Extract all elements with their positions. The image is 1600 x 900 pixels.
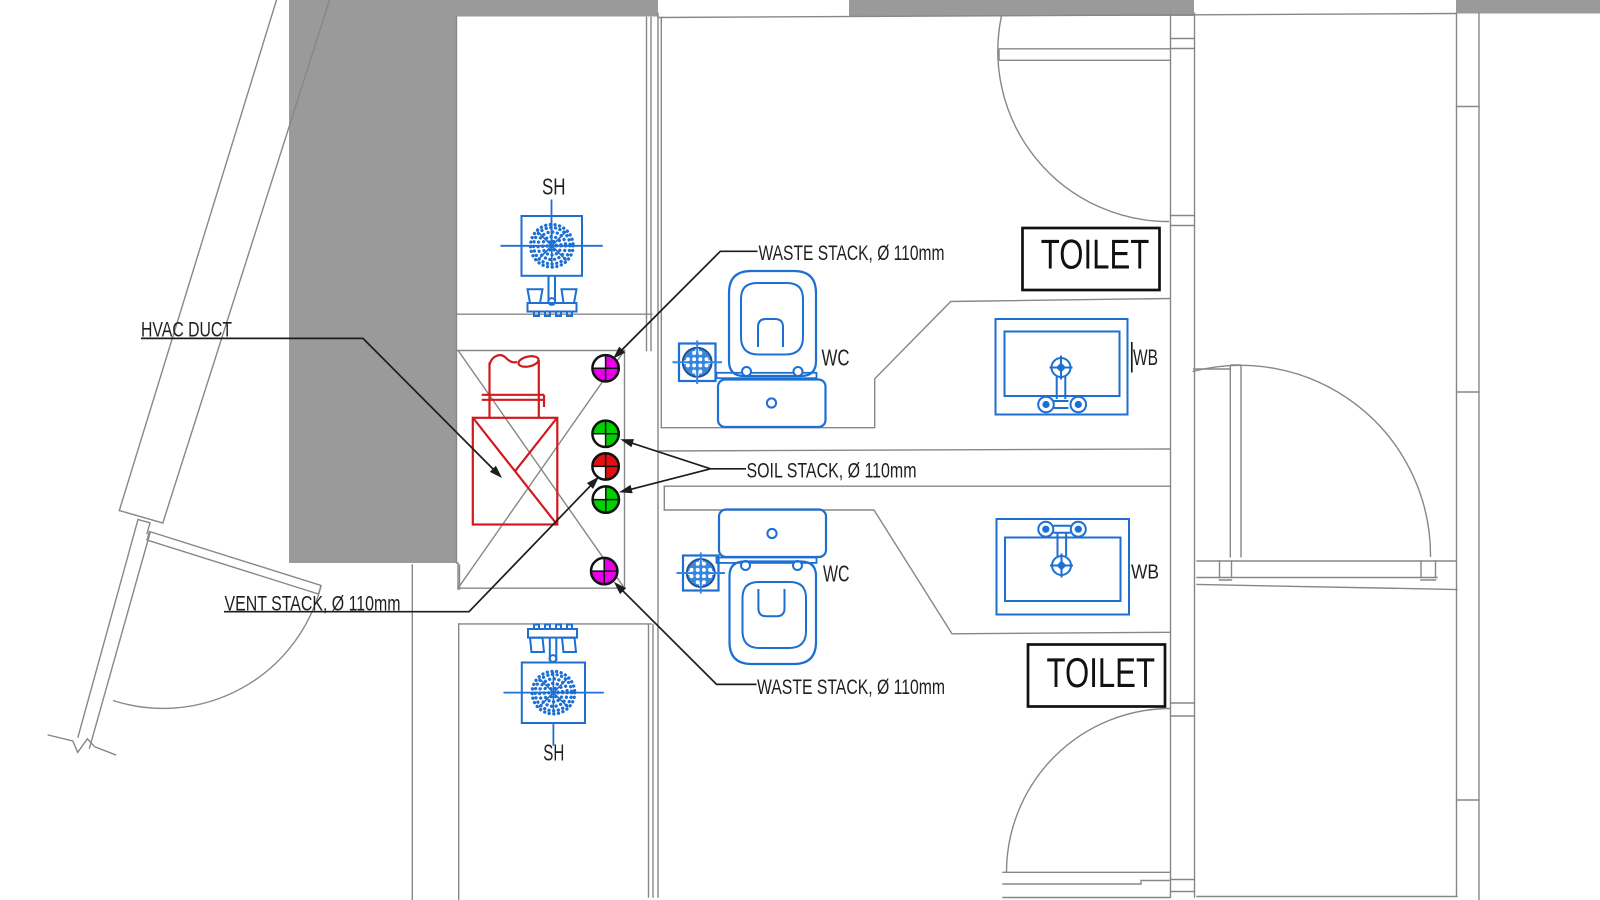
svg-text:WASTE STACK, Ø 110mm: WASTE STACK, Ø 110mm [759, 241, 945, 265]
svg-text:TOILET: TOILET [1047, 649, 1156, 696]
svg-text:WB: WB [1133, 345, 1158, 370]
svg-text:WB: WB [1131, 561, 1159, 583]
svg-text:WC: WC [822, 345, 850, 371]
svg-text:TOILET: TOILET [1041, 231, 1150, 278]
svg-text:SH: SH [542, 174, 566, 200]
svg-text:HVAC DUCT: HVAC DUCT [141, 319, 232, 342]
svg-text:SOIL STACK, Ø 110mm: SOIL STACK, Ø 110mm [747, 458, 917, 482]
svg-text:SH: SH [543, 740, 564, 766]
svg-text:WASTE STACK, Ø 110mm: WASTE STACK, Ø 110mm [757, 675, 945, 699]
svg-text:VENT STACK, Ø 110mm: VENT STACK, Ø 110mm [225, 592, 401, 616]
svg-text:WC: WC [823, 561, 850, 587]
